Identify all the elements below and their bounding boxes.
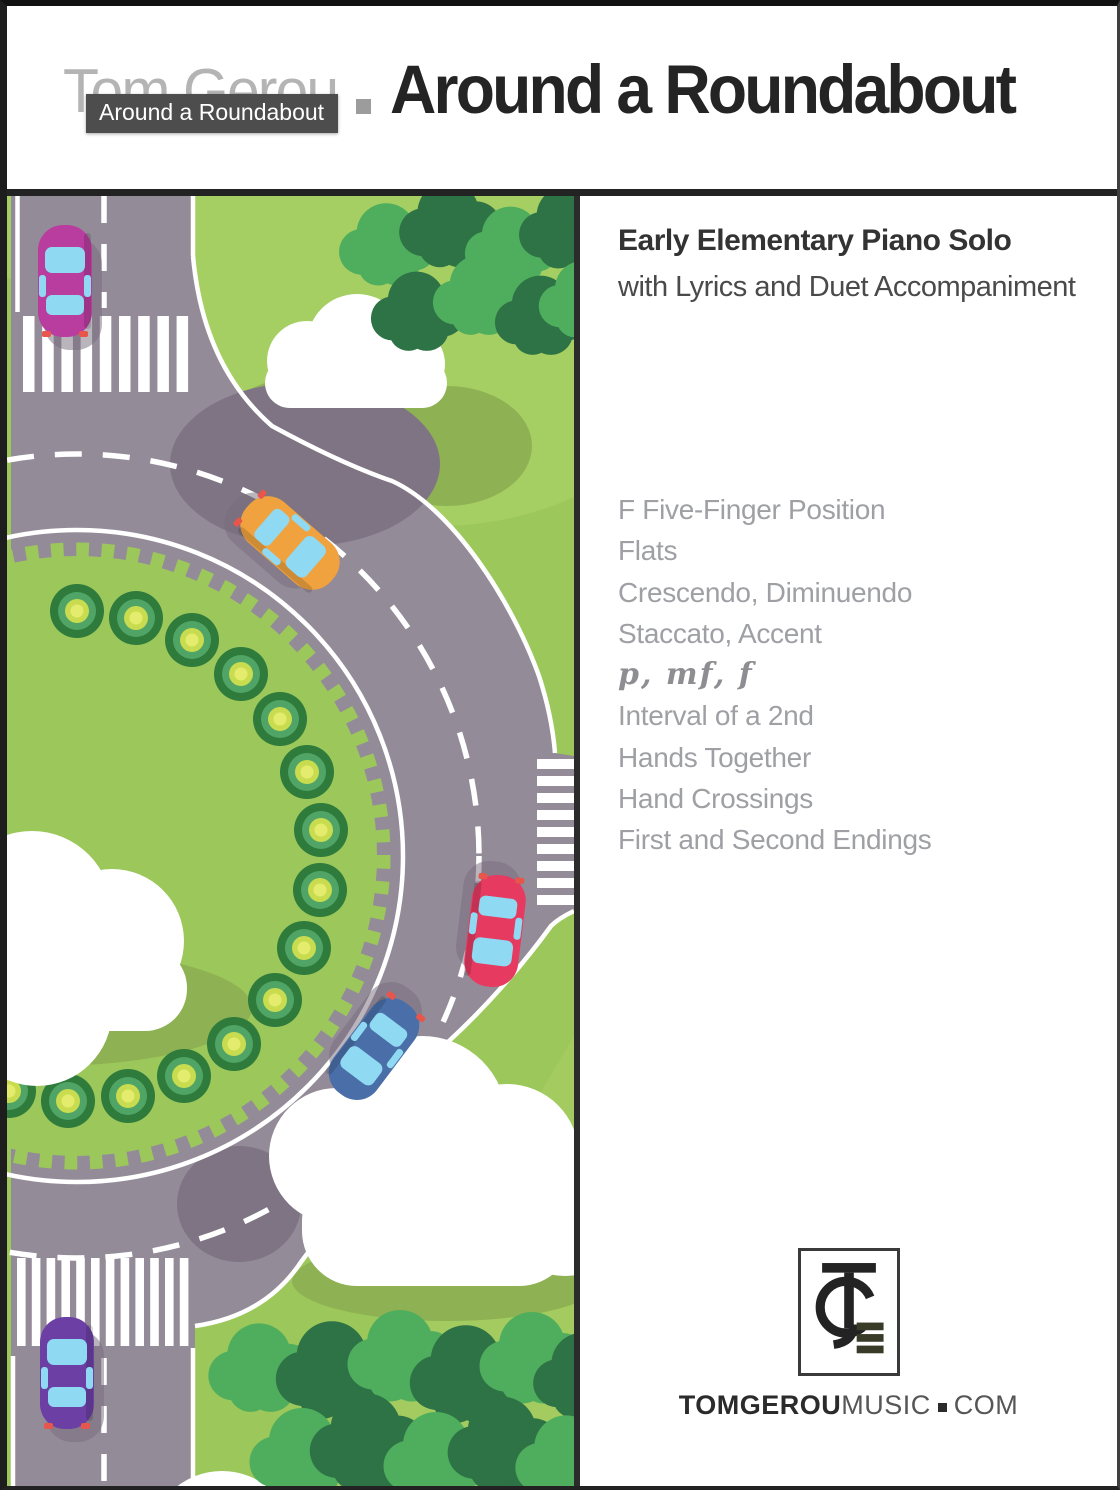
info-panel: Early Elementary Piano Solo with Lyrics …: [580, 196, 1117, 1486]
roundabout-scene: [7, 196, 574, 1486]
crosswalk-right: [537, 759, 574, 905]
feature-item: Flats: [618, 530, 931, 571]
page-title: Around a Roundabout: [390, 50, 1014, 129]
square-bullet-icon: [938, 1403, 947, 1412]
separator-square-icon: [356, 99, 371, 114]
wordmark-light: MUSIC: [841, 1390, 931, 1420]
content: Early Elementary Piano Solo with Lyrics …: [7, 196, 1117, 1486]
tom-gerou-monogram-icon: [801, 1251, 897, 1373]
wordmark-tld: COM: [954, 1390, 1019, 1420]
feature-list: F Five-Finger PositionFlatsCrescendo, Di…: [618, 489, 931, 861]
level-subheading: with Lyrics and Duet Accompaniment: [618, 271, 1075, 304]
feature-item: Staccato, Accent: [618, 613, 931, 654]
feature-item: First and Second Endings: [618, 819, 931, 860]
cover-illustration: [7, 196, 580, 1486]
page: Tom Gerou Around a Roundabout Around a R…: [0, 0, 1120, 1490]
header: Tom Gerou Around a Roundabout Around a R…: [7, 6, 1117, 196]
level-heading: Early Elementary Piano Solo: [618, 224, 1075, 258]
feature-item: Hand Crossings: [618, 778, 931, 819]
feature-item: Crescendo, Diminuendo: [618, 572, 931, 613]
feature-item: F Five-Finger Position: [618, 489, 931, 530]
feature-item: Interval of a 2nd: [618, 695, 931, 736]
wordmark-bold: TOMGEROU: [679, 1390, 842, 1420]
hover-tooltip: Around a Roundabout: [86, 94, 338, 133]
brand-block: TOMGEROUMUSICCOM: [580, 1248, 1117, 1421]
subtitle-block: Early Elementary Piano Solo with Lyrics …: [618, 224, 1075, 304]
feature-item: p, mf, f: [618, 654, 931, 695]
tree-cluster-bottom: [208, 1310, 574, 1486]
feature-item: Hands Together: [618, 737, 931, 778]
publisher-logo: [798, 1248, 900, 1376]
publisher-wordmark: TOMGEROUMUSICCOM: [580, 1390, 1117, 1421]
